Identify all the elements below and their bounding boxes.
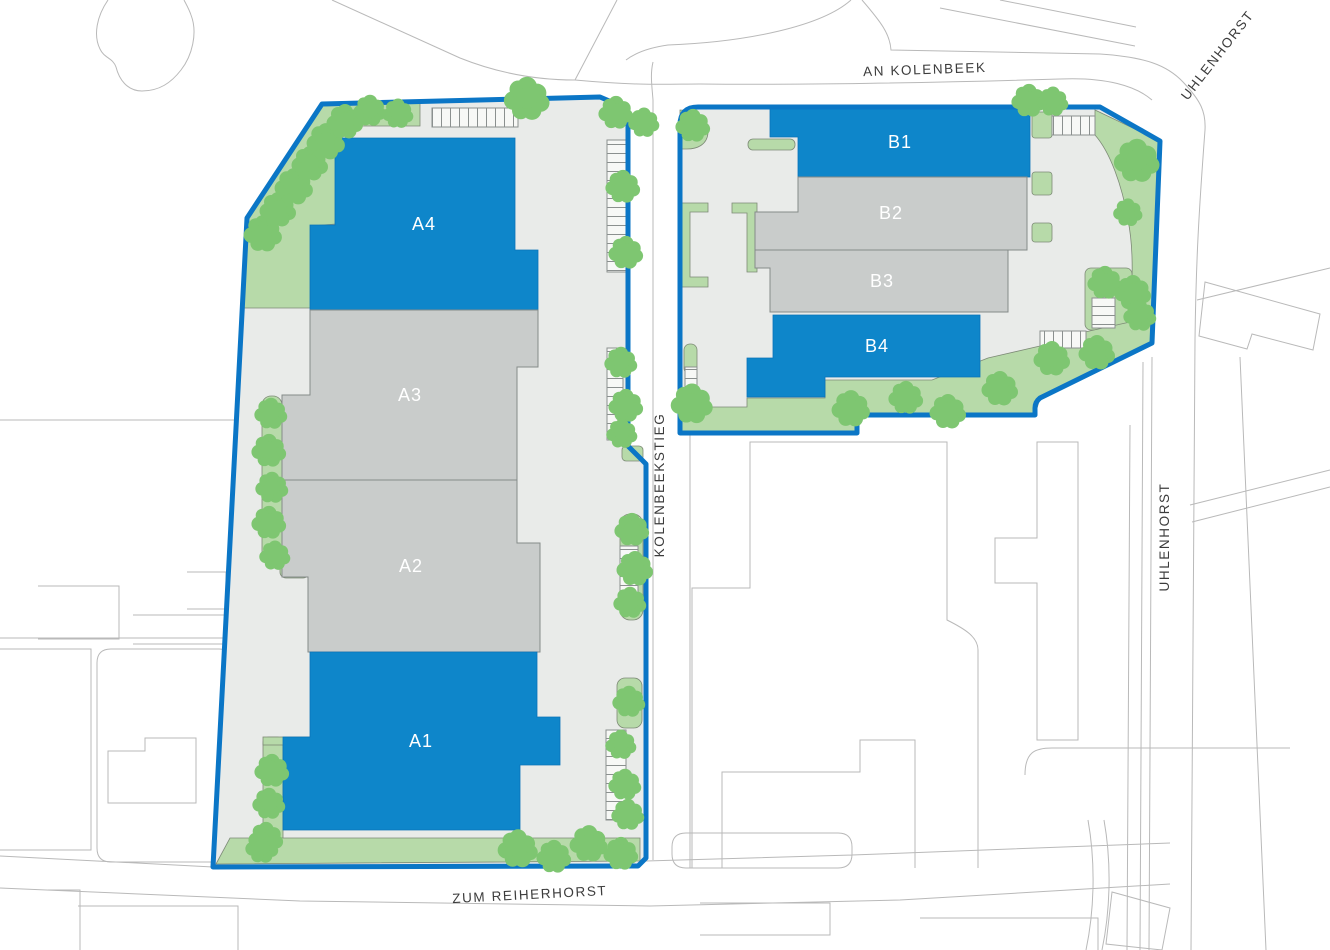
building-a4-label: A4 bbox=[412, 214, 436, 234]
building-a2-label: A2 bbox=[399, 556, 423, 576]
street-label-uhlenhorst-east: UHLENHORST bbox=[1157, 482, 1172, 591]
building-a1-label: A1 bbox=[409, 731, 433, 751]
building-b3-label: B3 bbox=[870, 271, 894, 291]
context-west-parcels bbox=[0, 420, 235, 862]
street-label-uhlenhorst-north: UHLENHORST bbox=[1178, 8, 1257, 103]
green-area bbox=[1032, 172, 1052, 195]
street-label-kolenbeekstieg: KOLENBEEKSTIEG bbox=[652, 413, 667, 558]
green-area bbox=[748, 139, 795, 150]
building-b1-label: B1 bbox=[888, 132, 912, 152]
parking-area bbox=[432, 108, 518, 127]
site-plan-map: A4 A3 A2 A1 bbox=[0, 0, 1330, 950]
parking-area bbox=[1052, 116, 1095, 135]
context-pond-outline bbox=[97, 0, 194, 91]
building-b4-label: B4 bbox=[865, 336, 889, 356]
building-b2-label: B2 bbox=[879, 203, 903, 223]
parking-area bbox=[1092, 298, 1115, 328]
context-northwest-roads bbox=[332, 0, 851, 80]
site-b: B1 B2 B3 B4 bbox=[680, 107, 1160, 433]
map-container: A4 A3 A2 A1 bbox=[0, 0, 1330, 950]
street-label-zum-reiherhorst: ZUM REIHERHORST bbox=[452, 883, 608, 906]
green-area bbox=[1032, 223, 1052, 242]
context-northeast-parcels bbox=[940, 0, 1136, 46]
building-a3-label: A3 bbox=[398, 385, 422, 405]
tree-icon bbox=[628, 108, 659, 137]
context-east-parcels bbox=[1127, 268, 1330, 950]
street-label-an-kolenbeek: AN KOLENBEEK bbox=[863, 60, 987, 79]
context-parcel-below-b bbox=[692, 442, 1290, 868]
